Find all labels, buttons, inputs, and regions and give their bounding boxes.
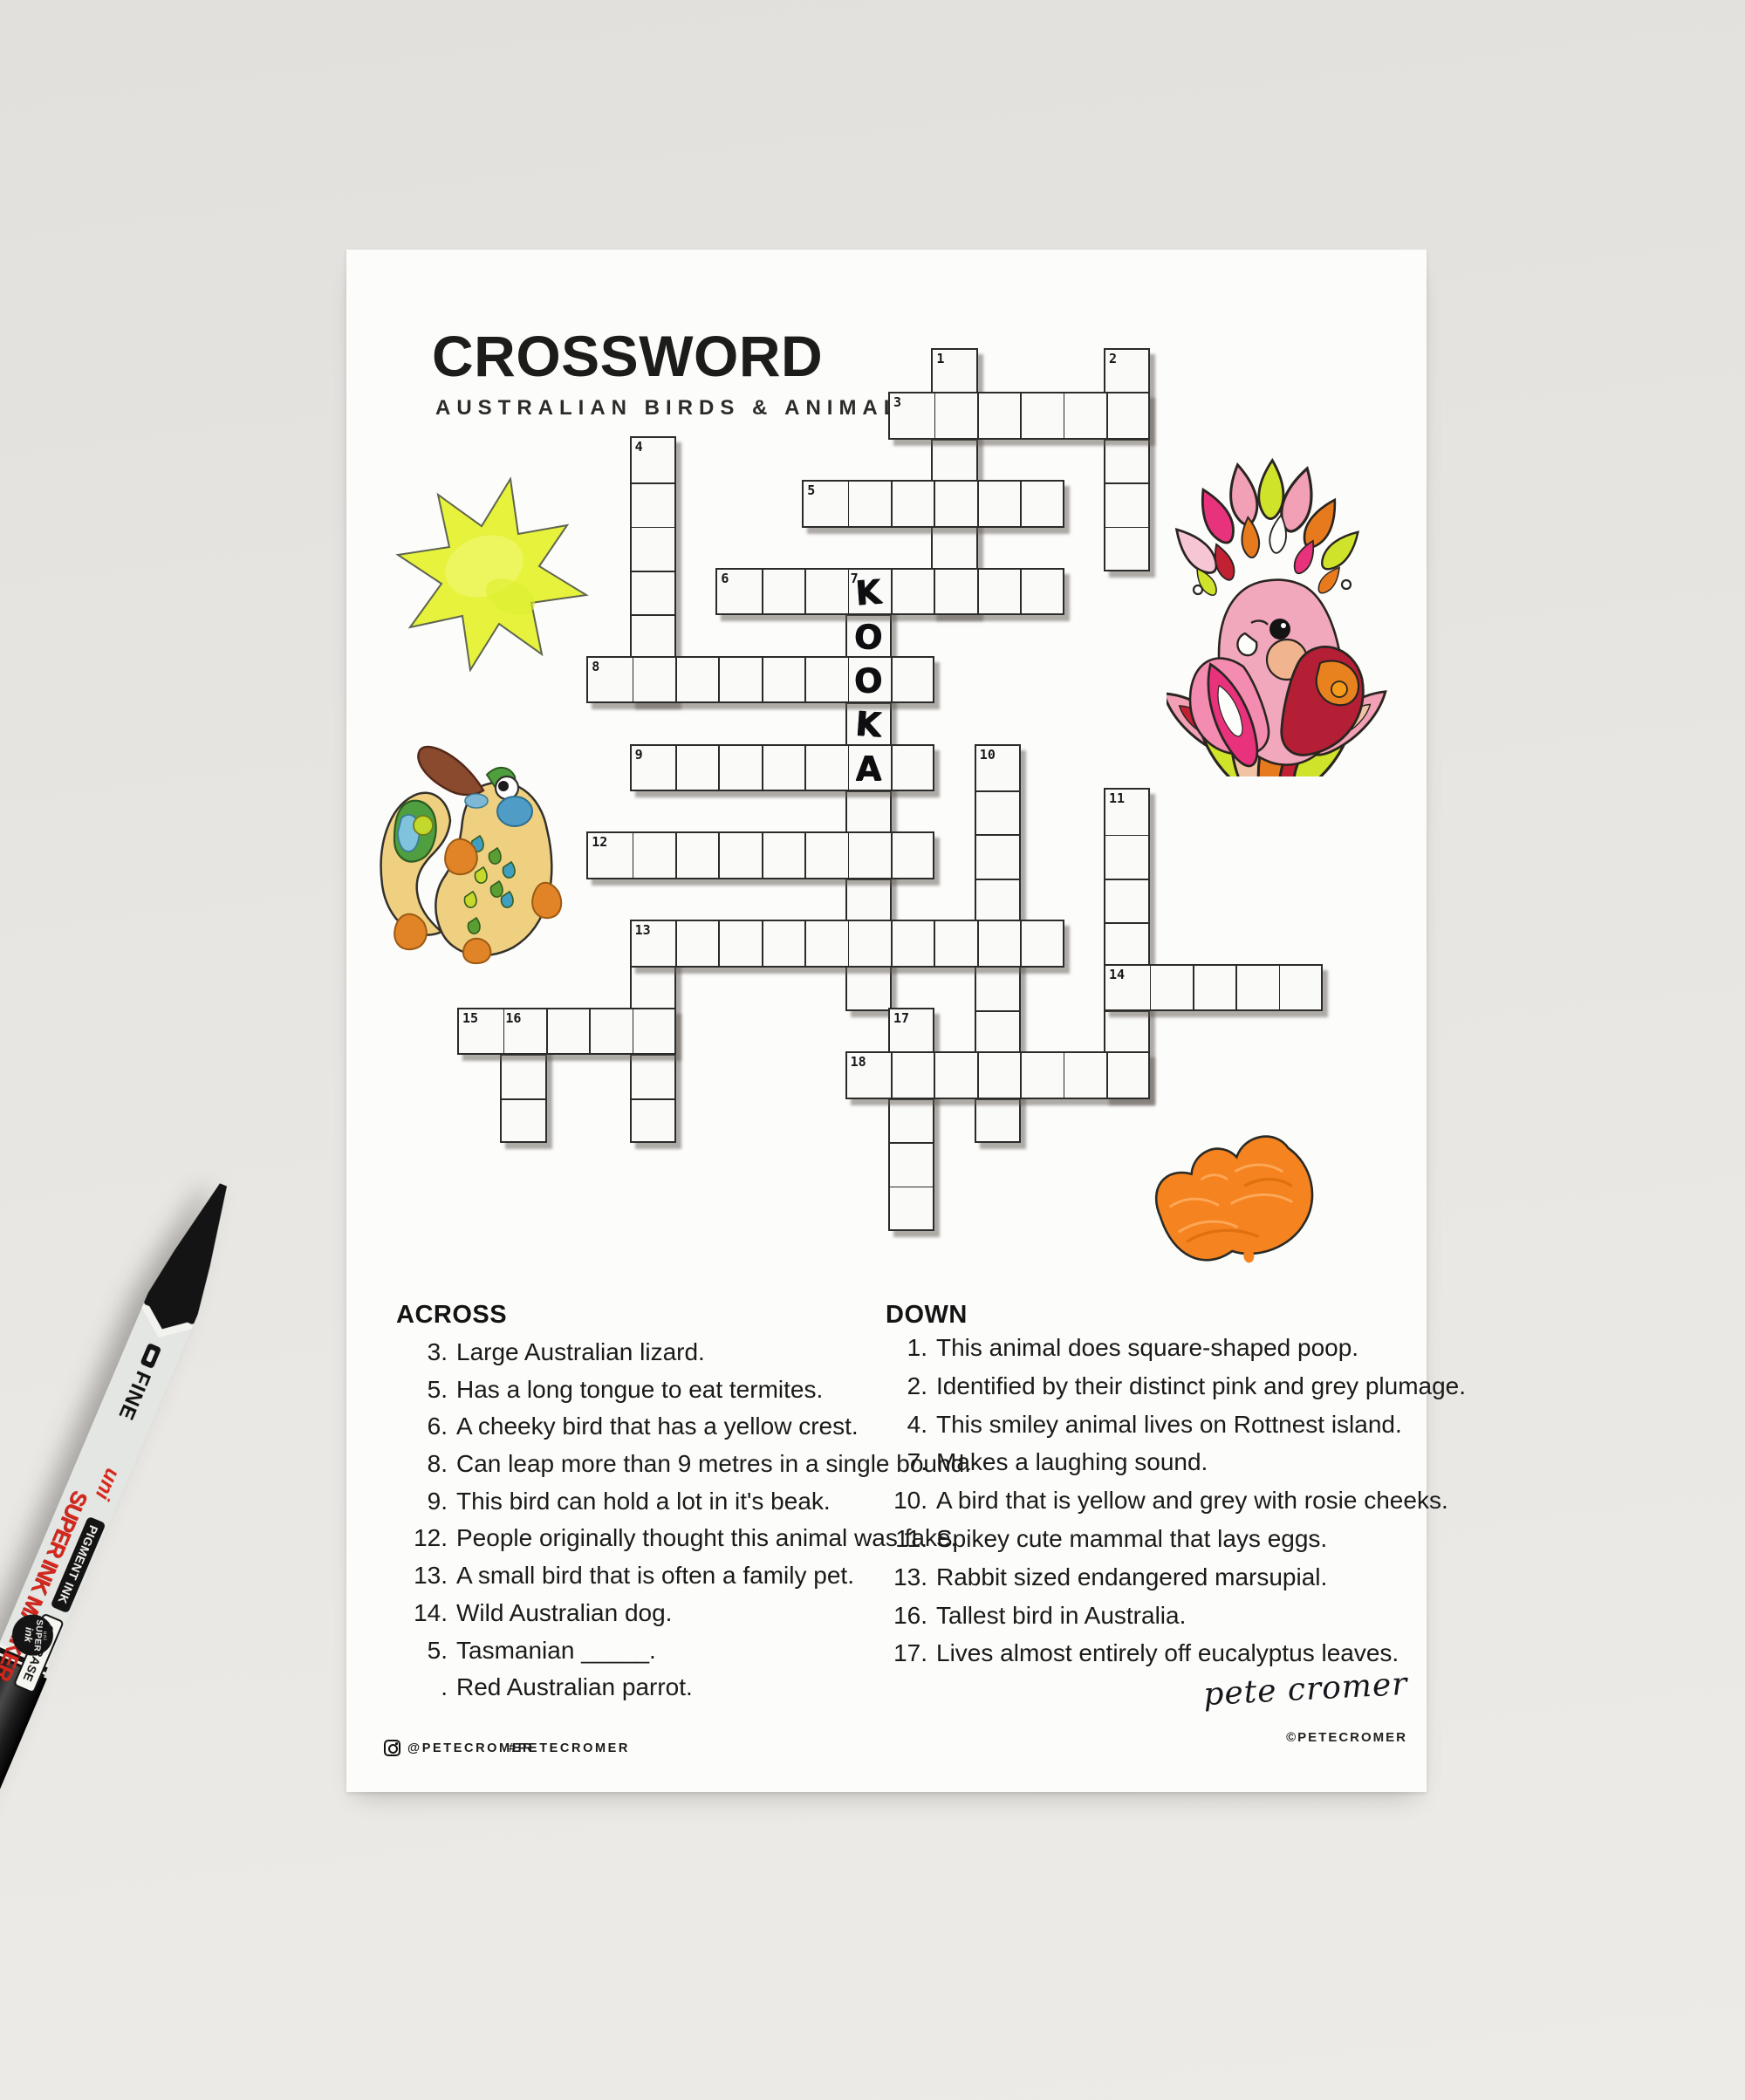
clue-text: Lives almost entirely off eucalyptus lea… (936, 1639, 1399, 1667)
cell-divider (804, 833, 806, 877)
cell-divider (977, 1053, 979, 1097)
word-3-across (888, 392, 1150, 439)
handwritten-letter: O (853, 661, 883, 701)
cell-divider (804, 921, 806, 965)
clue-text: This bird can hold a lot in it's beak. (456, 1488, 831, 1515)
clue-text: Large Australian lizard. (456, 1338, 705, 1366)
cell-divider (675, 658, 677, 701)
cell-number-10: 10 (980, 747, 996, 763)
cell-divider (1193, 966, 1194, 1009)
across-heading: ACROSS (396, 1301, 507, 1330)
clue-text: A cheeky bird that has a yellow crest. (456, 1413, 859, 1440)
cell-number-12: 12 (592, 834, 607, 850)
cell-divider (976, 834, 1019, 836)
yellow-starburst-illustration (393, 475, 593, 672)
clue-number: 4. (872, 1411, 927, 1439)
clue-number: 5. (392, 1376, 448, 1404)
cell-divider (762, 833, 763, 877)
cell-number-8: 8 (592, 659, 599, 674)
cell-divider (891, 658, 893, 701)
cell-divider (718, 746, 720, 790)
cell-number-6: 6 (721, 571, 729, 586)
platypus-illustration (375, 738, 563, 965)
clue-number: . (392, 1673, 448, 1701)
clue-text: A bird that is yellow and grey with rosi… (936, 1487, 1448, 1515)
clue-number: 17. (872, 1639, 927, 1667)
clue-text: Tasmanian _____. (456, 1637, 656, 1665)
page-subtitle: AUSTRALIAN BIRDS & ANIMALS (435, 396, 922, 421)
word-14-across (1104, 964, 1323, 1011)
cell-number-3: 3 (893, 394, 901, 410)
cell-divider (589, 1009, 591, 1053)
cell-divider (848, 746, 850, 790)
cell-number-5: 5 (807, 482, 815, 498)
cell-divider (848, 833, 850, 877)
cell-number-18: 18 (851, 1054, 866, 1070)
cell-divider (1106, 393, 1108, 437)
down-heading: DOWN (886, 1301, 968, 1330)
cell-divider (1020, 482, 1022, 525)
cell-number-14: 14 (1109, 967, 1125, 982)
clue-number: 12. (392, 1524, 448, 1552)
copyright-line: ©PETECROMER (1254, 1730, 1407, 1745)
cell-divider (1020, 570, 1022, 613)
cell-number-4: 4 (635, 439, 643, 455)
word-17-down (888, 1008, 934, 1231)
cell-divider (804, 570, 806, 613)
word-5-across (802, 480, 1064, 527)
clue-number: 8. (392, 1450, 448, 1478)
signature-text: pete cromer (1202, 1666, 1409, 1713)
cell-divider (891, 746, 893, 790)
cell-divider (1020, 393, 1022, 437)
cell-divider (632, 1098, 674, 1100)
clue-text: Identified by their distinct pink and gr… (936, 1372, 1466, 1400)
cell-number-15: 15 (462, 1010, 478, 1026)
cell-divider (977, 482, 979, 525)
clue-text: Wild Australian dog. (456, 1599, 672, 1627)
cell-divider (1020, 1053, 1022, 1097)
clue-number: 11. (872, 1525, 927, 1553)
cell-divider (848, 482, 850, 525)
cell-divider (977, 921, 979, 965)
cell-divider (1064, 1053, 1065, 1097)
artist-signature: pete cromer (1197, 1665, 1424, 1733)
cell-divider (633, 1009, 634, 1053)
cell-divider (675, 746, 677, 790)
cell-divider (1105, 835, 1148, 837)
cell-divider (503, 1009, 505, 1053)
cell-divider (891, 570, 893, 613)
pen-branding: uni SUPER INK MARKER PIGMENT INK OIL-BAS… (0, 1408, 149, 1664)
clue-text: Spikey cute mammal that lays eggs. (936, 1525, 1327, 1553)
cell-divider (718, 921, 720, 965)
cell-divider (675, 833, 677, 877)
pen-fine-label: FINE (113, 1367, 155, 1424)
clue-number: 5. (392, 1637, 448, 1665)
photo-scene: CROSSWORD AUSTRALIAN BIRDS & ANIMALS 123… (0, 0, 1745, 2100)
clue-number: 13. (872, 1563, 927, 1591)
clue-line: 11.Spikey cute mammal that lays eggs. (872, 1525, 1466, 1563)
cell-divider (546, 1009, 548, 1053)
down-clue-list: 1.This animal does square-shaped poop.2.… (872, 1334, 1466, 1678)
pink-galah-illustration (1167, 452, 1395, 776)
clue-line: 7.Makes a laughing sound. (872, 1448, 1466, 1487)
cell-number-13: 13 (635, 922, 651, 938)
handwritten-letter: K (854, 572, 882, 612)
handwritten-letter: K (854, 705, 882, 745)
cell-divider (1150, 966, 1152, 1009)
marker-pen: FINE uni SUPER INK MARKER PIGMENT INK OI… (0, 1174, 249, 1942)
handwritten-letter: A (856, 749, 881, 788)
pen-label-band: FINE uni SUPER INK MARKER PIGMENT INK OI… (0, 1329, 183, 1665)
cell-divider (1105, 527, 1148, 529)
clue-number: 2. (872, 1372, 927, 1400)
clue-line: 16.Tallest bird in Australia. (872, 1602, 1466, 1640)
clue-text: This smiley animal lives on Rottnest isl… (936, 1411, 1402, 1439)
cell-divider (977, 393, 979, 437)
word-18-across (845, 1051, 1151, 1098)
cell-divider (977, 570, 979, 613)
cell-divider (632, 614, 674, 616)
cell-divider (848, 658, 850, 701)
cell-divider (762, 570, 763, 613)
cell-divider (934, 921, 935, 965)
cell-divider (891, 1053, 893, 1097)
clue-line: .Red Australian parrot. (392, 1673, 971, 1711)
uni-brand-text: uni (90, 1465, 125, 1503)
cell-divider (890, 1142, 933, 1144)
orange-blossom-illustration (1143, 1119, 1326, 1278)
cell-number-11: 11 (1109, 790, 1125, 806)
clue-number: 10. (872, 1487, 927, 1515)
crossword-sheet: CROSSWORD AUSTRALIAN BIRDS & ANIMALS 123… (346, 250, 1427, 1792)
cell-divider (976, 1010, 1019, 1012)
word-15-across (457, 1008, 676, 1055)
cell-divider (632, 482, 674, 484)
cell-divider (502, 1098, 544, 1100)
cell-divider (762, 921, 763, 965)
clue-text: Red Australian parrot. (456, 1673, 693, 1701)
cell-number-9: 9 (635, 747, 643, 763)
pen-label-strip: FINE uni SUPER INK MARKER PIGMENT INK OI… (0, 1329, 183, 1665)
cell-divider (1020, 921, 1022, 965)
cell-divider (848, 570, 850, 613)
clue-text: Has a long tongue to eat termites. (456, 1376, 823, 1404)
cell-divider (632, 527, 674, 529)
cell-divider (633, 833, 634, 877)
cell-divider (675, 921, 677, 965)
clue-text: Tallest bird in Australia. (936, 1602, 1186, 1630)
cell-divider (718, 658, 720, 701)
clue-line: 4.This smiley animal lives on Rottnest i… (872, 1411, 1466, 1449)
handwritten-letter: O (853, 617, 884, 657)
cell-number-17: 17 (893, 1010, 909, 1026)
word-12-across (586, 831, 934, 879)
cell-divider (1064, 393, 1065, 437)
cell-divider (633, 658, 634, 701)
cell-divider (1105, 922, 1148, 924)
cell-number-16: 16 (505, 1010, 521, 1026)
clue-text: Makes a laughing sound. (936, 1448, 1208, 1476)
cell-divider (1105, 879, 1148, 880)
cell-divider (718, 833, 720, 877)
clue-line: 1.This animal does square-shaped poop. (872, 1334, 1466, 1372)
clue-number: 7. (872, 1448, 927, 1476)
clue-text: A small bird that is often a family pet. (456, 1562, 854, 1590)
cell-divider (976, 879, 1019, 880)
clue-text: This animal does square-shaped poop. (936, 1334, 1358, 1362)
uni-logo-mark (140, 1343, 161, 1369)
clue-number: 1. (872, 1334, 927, 1362)
cell-divider (804, 746, 806, 790)
cell-divider (848, 921, 850, 965)
cell-divider (891, 833, 893, 877)
word-6-across (715, 568, 1064, 615)
word-9-across (630, 744, 935, 791)
page-title: CROSSWORD (432, 323, 823, 389)
clue-line: 13.Rabbit sized endangered marsupial. (872, 1563, 1466, 1602)
clue-number: 9. (392, 1488, 448, 1515)
clue-number: 16. (872, 1602, 927, 1630)
cell-divider (934, 482, 935, 525)
instagram-icon (384, 1740, 400, 1756)
cell-divider (1106, 1053, 1108, 1097)
cell-divider (1279, 966, 1281, 1009)
cell-divider (934, 1053, 935, 1097)
cell-divider (934, 393, 936, 437)
cell-divider (632, 571, 674, 572)
cell-number-2: 2 (1109, 351, 1117, 366)
cell-divider (1105, 482, 1148, 484)
clue-number: 14. (392, 1599, 448, 1627)
word-13-across (630, 920, 1064, 967)
clue-line: 10.A bird that is yellow and grey with r… (872, 1487, 1466, 1525)
cell-divider (1235, 966, 1237, 1009)
clue-number: 6. (392, 1413, 448, 1440)
clue-number: 3. (392, 1338, 448, 1366)
cell-divider (976, 790, 1019, 792)
clue-line: 2.Identified by their distinct pink and … (872, 1372, 1466, 1411)
cell-divider (762, 746, 763, 790)
cell-divider (891, 921, 893, 965)
cell-number-1: 1 (936, 351, 944, 366)
cell-divider (762, 658, 763, 701)
cell-divider (934, 570, 935, 613)
pen-barrel (0, 1655, 47, 1944)
cell-divider (804, 658, 806, 701)
clue-text: Rabbit sized endangered marsupial. (936, 1563, 1327, 1591)
clue-number: 13. (392, 1562, 448, 1590)
cell-divider (891, 482, 893, 525)
word-2-down (1104, 348, 1150, 571)
cell-divider (890, 1187, 933, 1188)
hashtag: #PETECROMER (509, 1741, 630, 1755)
